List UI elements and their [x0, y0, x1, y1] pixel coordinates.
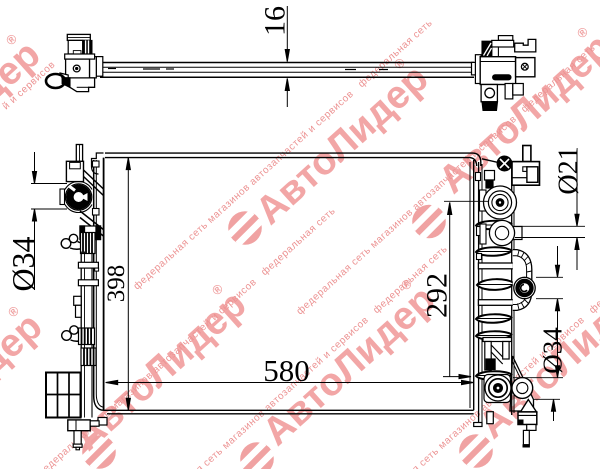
svg-text:Ø34: Ø34: [5, 236, 41, 291]
svg-text:292: 292: [420, 273, 453, 318]
svg-text:Ø21: Ø21: [553, 146, 584, 194]
svg-text:16: 16: [258, 6, 291, 36]
svg-text:398: 398: [103, 265, 130, 303]
svg-text:580: 580: [263, 353, 310, 388]
svg-text:Ø34: Ø34: [538, 327, 568, 374]
